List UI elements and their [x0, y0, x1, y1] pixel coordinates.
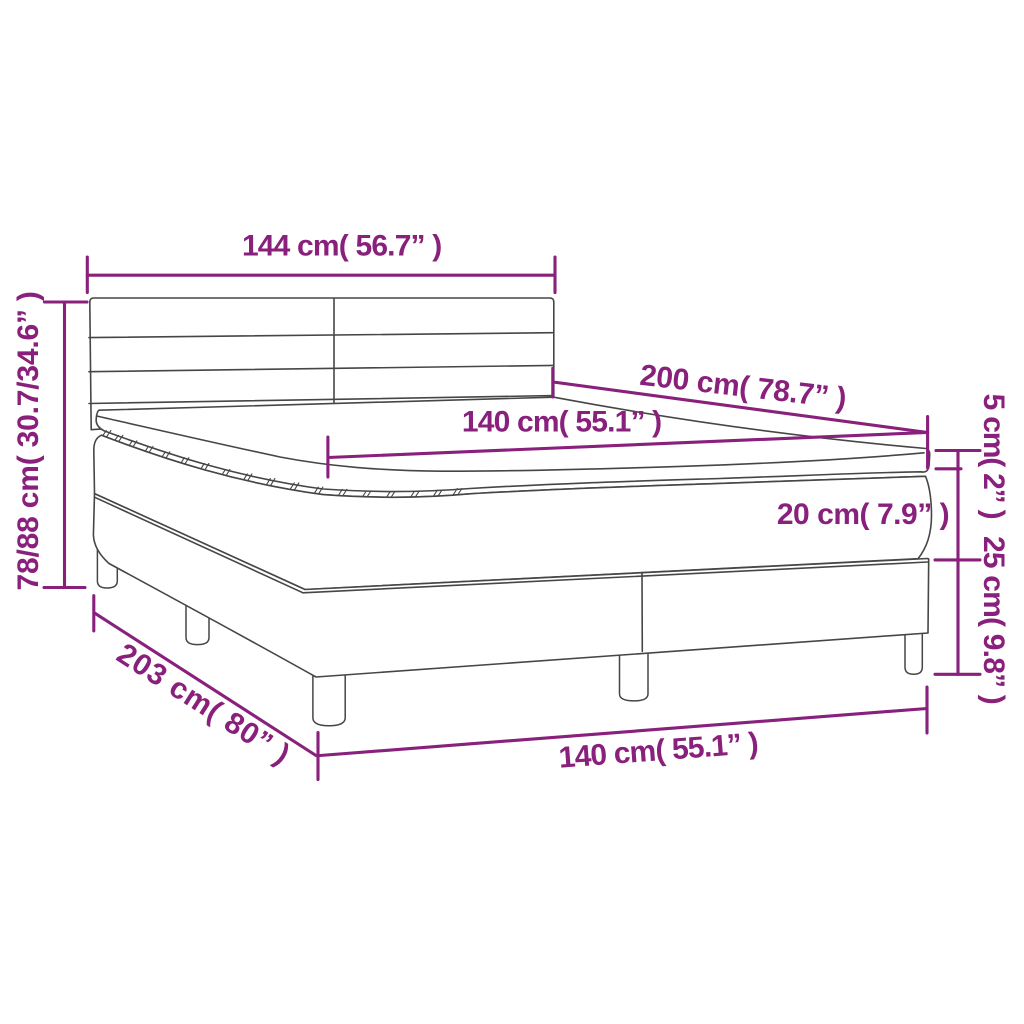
svg-text:25 cm( 9.8” ): 25 cm( 9.8” )	[977, 536, 1010, 704]
svg-text:140 cm( 55.1” ): 140 cm( 55.1” )	[462, 406, 662, 439]
svg-text:5 cm( 2” ): 5 cm( 2” )	[977, 394, 1010, 519]
svg-text:20 cm( 7.9” ): 20 cm( 7.9” )	[777, 498, 949, 531]
svg-text:78/88 cm( 30.7/34.6” ): 78/88 cm( 30.7/34.6” )	[12, 291, 45, 590]
svg-text:144 cm( 56.7” ): 144 cm( 56.7” )	[242, 230, 442, 263]
